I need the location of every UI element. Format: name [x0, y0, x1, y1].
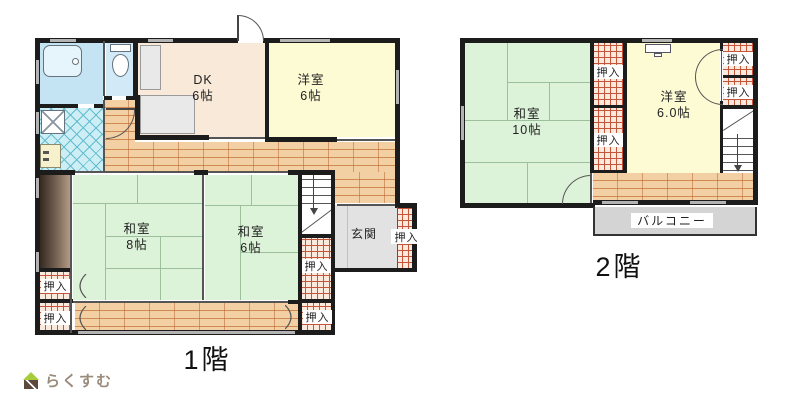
closet-label-4: 押入 [303, 310, 332, 324]
wall-segment [70, 175, 72, 333]
closet-label-1: 押入 [41, 279, 70, 293]
window [148, 39, 173, 42]
wall-segment [298, 172, 302, 335]
window [50, 39, 76, 42]
wall-segment [593, 105, 623, 108]
genkan-label: 玄関 [340, 226, 388, 244]
wall-segment [593, 170, 623, 173]
wall-segment [288, 170, 335, 175]
washitsu10-label: 和室 10帖 [493, 102, 561, 142]
veranda [75, 303, 298, 330]
wall-segment [288, 300, 300, 304]
washitsu8-name: 和室 [123, 221, 150, 237]
western2f-name: 洋室 [660, 89, 687, 105]
wall-segment [265, 137, 337, 142]
window [602, 201, 638, 204]
wall-segment [723, 75, 753, 78]
wall-segment [331, 172, 335, 333]
rakusumu-logo: らくすむ [22, 370, 113, 391]
wall-segment [337, 139, 395, 141]
washitsu8-label: 和室 8帖 [103, 217, 171, 257]
wall-segment [73, 301, 298, 303]
wall-segment [723, 105, 753, 109]
closet-door-mark [74, 274, 87, 298]
wall-segment [623, 43, 627, 173]
window [642, 39, 672, 42]
window [78, 331, 295, 334]
wall-segment [103, 41, 105, 96]
hall-genkan-upper [335, 172, 395, 203]
balcony-wall [593, 207, 595, 236]
tatami-line [73, 203, 202, 204]
window [36, 178, 39, 198]
closet-label-8: 押入 [724, 52, 753, 66]
window [690, 201, 726, 204]
stair-arrow-head-2f [734, 165, 742, 172]
tokonoma-alcove [40, 175, 70, 268]
washroom-sink [40, 144, 61, 168]
washitsu10-name: 和室 [513, 106, 540, 122]
ceiling-light [645, 44, 671, 53]
logo-text: らくすむ [45, 370, 113, 391]
western1f-size: 6帖 [300, 88, 321, 104]
tatami-line [251, 175, 252, 206]
western2f-label: 洋室 6.0帖 [636, 85, 712, 125]
stair-arrow-head-1f [310, 208, 318, 215]
tatami-line [137, 175, 138, 203]
tatami-line [205, 205, 298, 206]
house-icon [22, 372, 40, 390]
washitsu6-label: 和室 6帖 [217, 220, 285, 260]
wall-segment [35, 38, 400, 43]
dk-label: DK 6帖 [175, 68, 231, 108]
wall-segment [298, 299, 335, 303]
wall-segment [35, 170, 75, 175]
balcony-wall [593, 234, 757, 236]
wall-segment [194, 170, 208, 175]
western2f-size: 6.0帖 [657, 105, 691, 121]
balcony-label: バルコニー [631, 213, 713, 228]
washitsu6-size: 6帖 [240, 240, 261, 256]
wall-segment [135, 135, 209, 140]
window [461, 106, 464, 140]
closet-door-mark [285, 305, 298, 329]
balcony-wall [755, 207, 757, 236]
wall-segment [753, 43, 758, 205]
closet-label-3: 押入 [302, 259, 331, 273]
wall-segment [35, 104, 78, 108]
window [36, 112, 39, 134]
hall-2f [593, 173, 753, 203]
wall-segment [590, 43, 594, 173]
wall-segment [335, 268, 417, 272]
dk-name: DK [193, 72, 212, 88]
tatami-line [105, 268, 202, 269]
wall-segment [337, 204, 395, 206]
sink-faucet [43, 158, 49, 161]
stair-arrow-line-1f [313, 175, 314, 209]
stair-arrow-line-2f [737, 134, 738, 166]
dk-size: 6帖 [192, 88, 213, 104]
window [280, 39, 330, 42]
washitsu10-size: 10帖 [512, 122, 541, 138]
ceiling-light-tab [654, 53, 662, 57]
wall-segment [133, 38, 138, 100]
bathtub-drain [72, 58, 79, 65]
closet-label-7: 押入 [594, 133, 623, 147]
entry-door-arc [238, 15, 264, 41]
closet-label-6: 押入 [594, 65, 623, 79]
wall-segment [35, 268, 72, 272]
wall-segment [104, 96, 112, 100]
washitsu8-size: 8帖 [126, 237, 147, 253]
sink-faucet [43, 151, 49, 154]
wall-segment [265, 43, 269, 140]
western1f-name: 洋室 [297, 72, 324, 88]
washitsu6-name: 和室 [237, 224, 264, 240]
tatami-line [527, 162, 528, 203]
wall-segment [103, 100, 105, 172]
stair-treads-1f [300, 172, 331, 205]
closet-label-5: 押入 [391, 229, 422, 244]
window [36, 60, 39, 84]
wall-segment [720, 101, 723, 173]
closet-door-mark [74, 306, 87, 330]
window [396, 70, 399, 104]
wall-segment [298, 234, 335, 238]
wall-segment [395, 43, 400, 207]
window [36, 252, 39, 272]
western1f-label: 洋室 6帖 [277, 68, 345, 108]
wall-segment [126, 96, 135, 100]
kitchen-counter-left [140, 45, 161, 90]
floor2-label: 2階 [577, 249, 662, 279]
closet-label-9: 押入 [724, 85, 753, 99]
floorplan: DK 6帖 洋室 6帖 和室 8帖 和室 6帖 玄関 押入 押入 押入 押入 押… [0, 0, 800, 400]
toilet-tank [110, 44, 131, 52]
wall-segment [202, 175, 204, 300]
wall-segment [35, 299, 73, 303]
wall-segment [460, 38, 758, 43]
wall-segment [209, 137, 265, 139]
floor1-label: 1階 [165, 342, 250, 372]
closet-label-2: 押入 [41, 311, 70, 325]
washing-machine-pan [41, 110, 65, 134]
hall-main [104, 142, 395, 172]
